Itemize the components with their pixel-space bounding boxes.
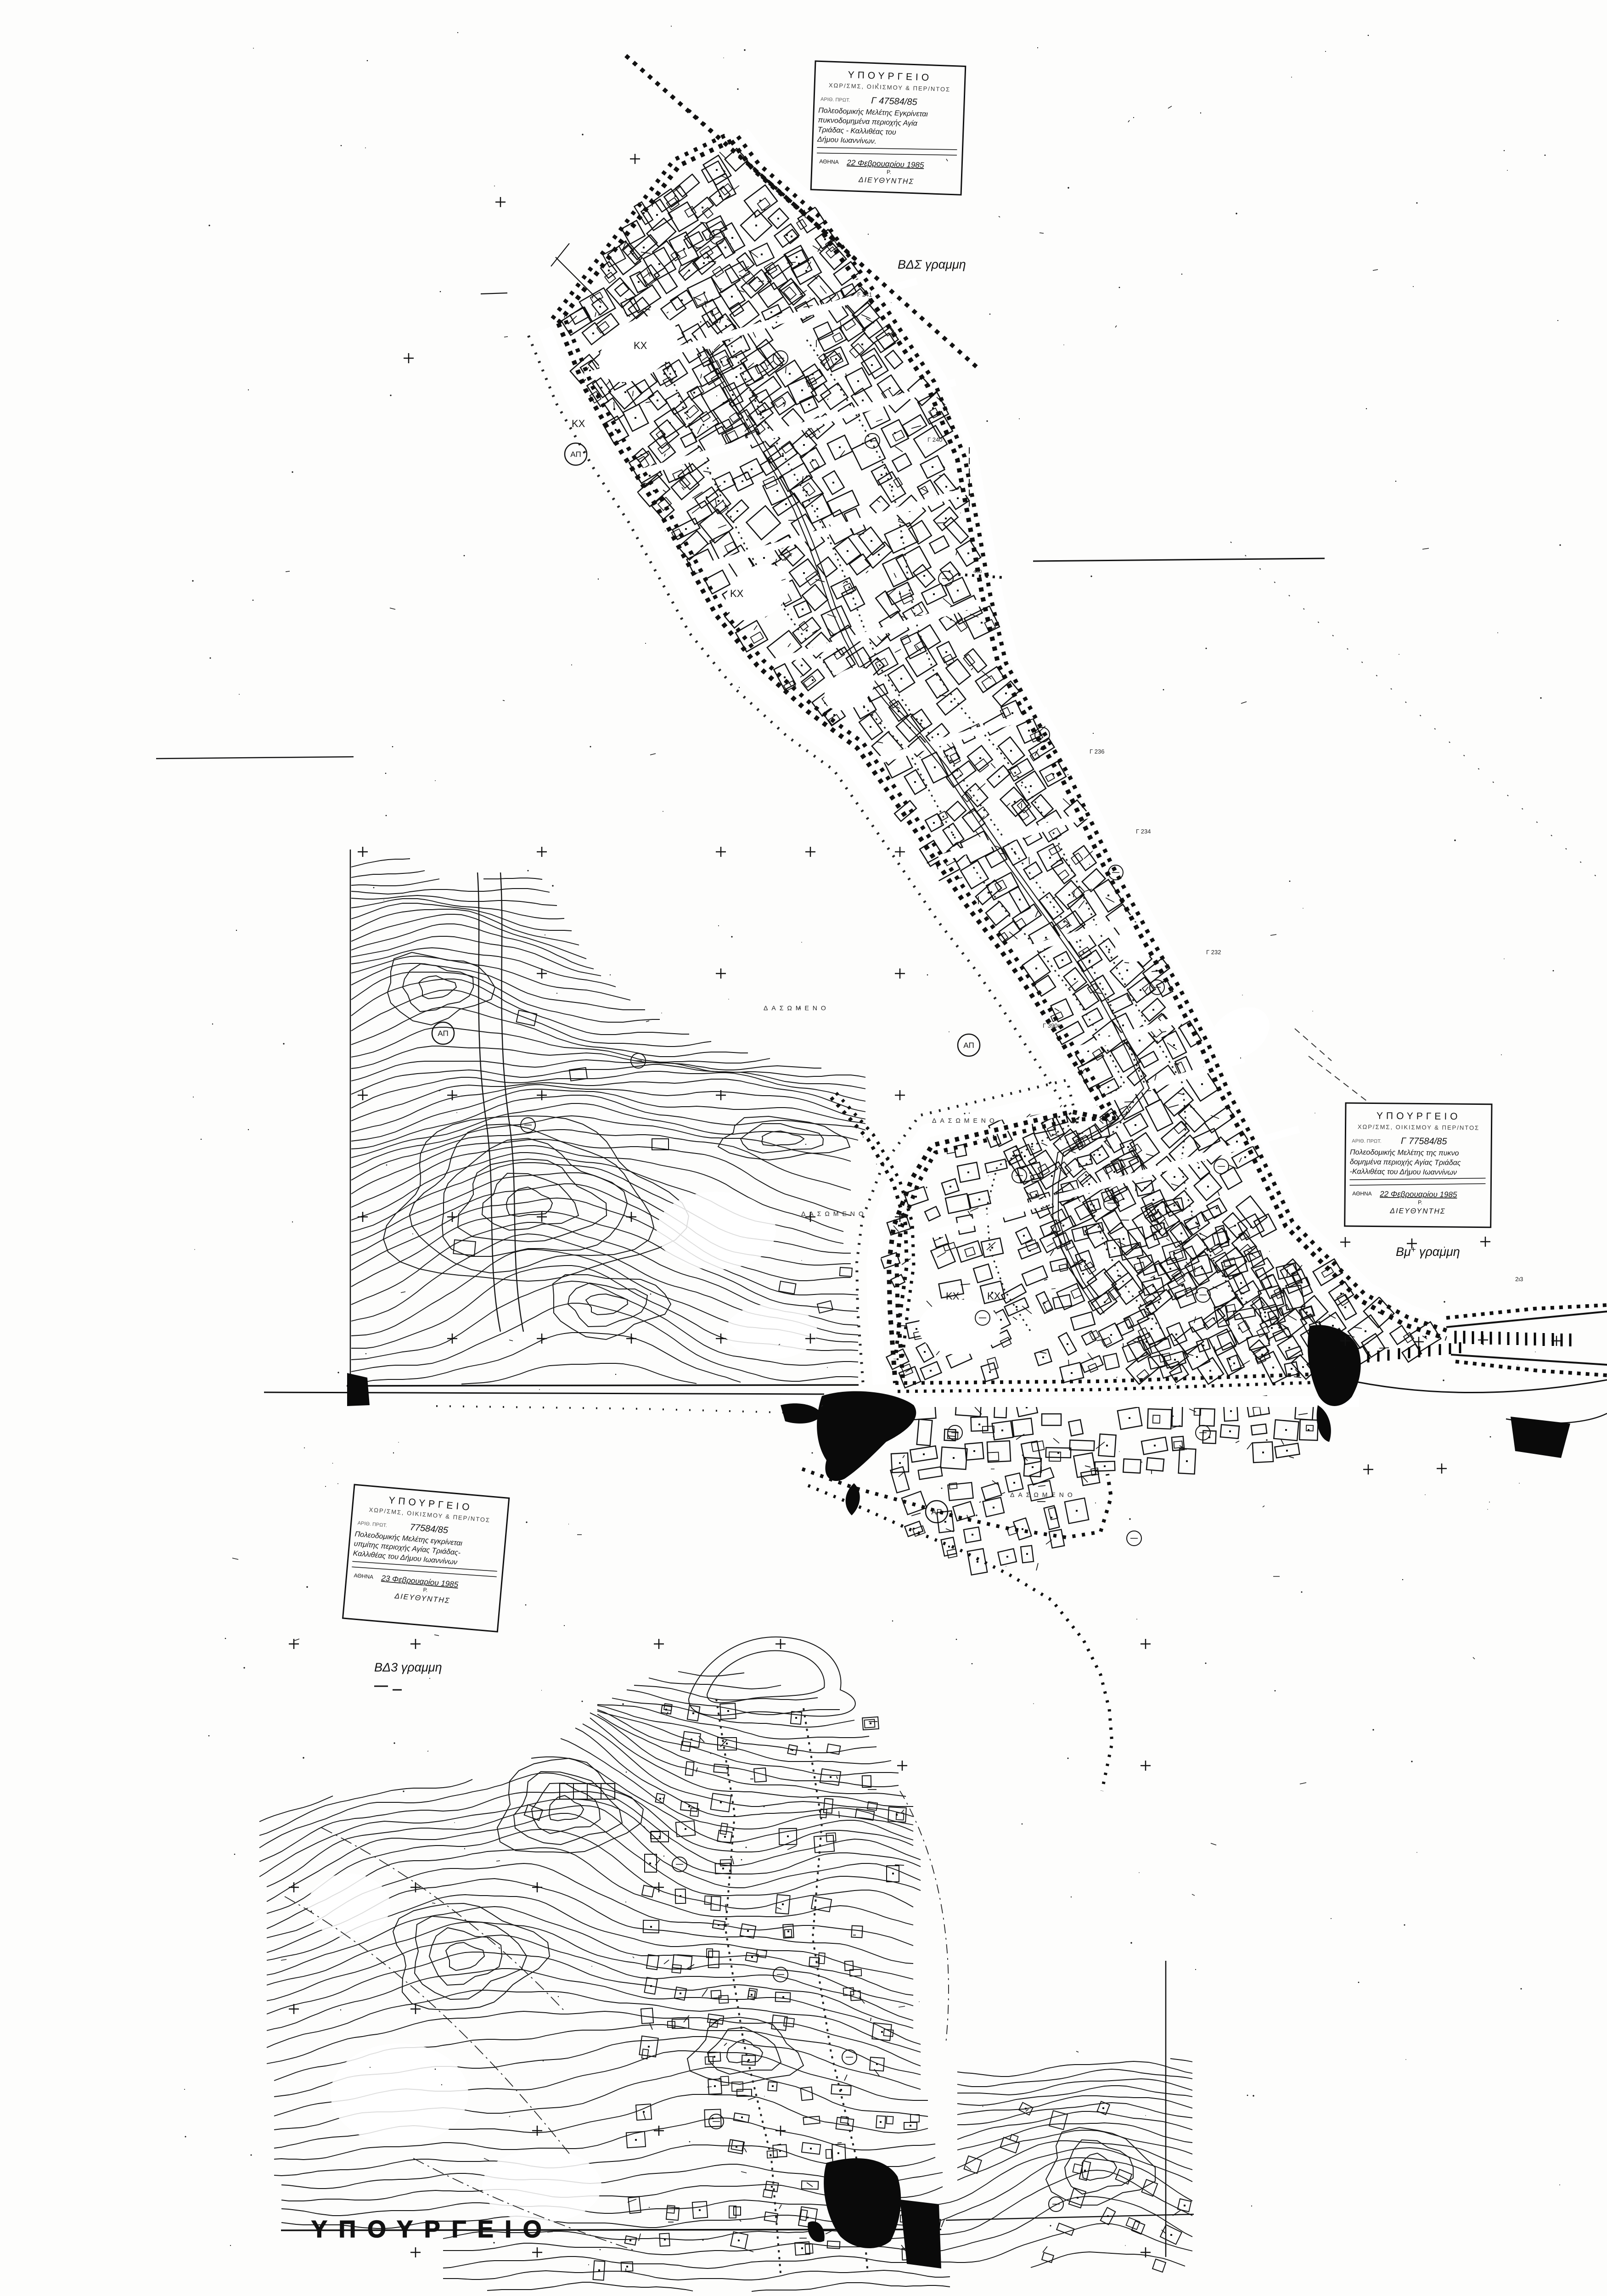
svg-text:ΔΑΣΩΜΕΝΟ: ΔΑΣΩΜΕΝΟ <box>1010 1491 1076 1498</box>
svg-text:ΔΑΣΩΜΕΝΟ: ΔΑΣΩΜΕΝΟ <box>801 1210 867 1217</box>
svg-text:ΔΑΣΩΜΕΝΟ: ΔΑΣΩΜΕΝΟ <box>764 1004 830 1012</box>
svg-text:ΧΩΡ/ΣΜΣ, ΟΙΚΙΣΜΟΥ & ΠΕΡ/ΝΤΟΣ: ΧΩΡ/ΣΜΣ, ΟΙΚΙΣΜΟΥ & ΠΕΡ/ΝΤΟΣ <box>1358 1123 1479 1131</box>
svg-text:Ρ.: Ρ. <box>1418 1199 1422 1205</box>
svg-text:ΔΑΣΩΜΕΝΟ: ΔΑΣΩΜΕΝΟ <box>932 1117 998 1124</box>
svg-text:Γ 77584/85: Γ 77584/85 <box>1401 1136 1447 1147</box>
svg-text:400: 400 <box>973 569 982 574</box>
svg-text:ΑΡΙΘ. ΠΡΩΤ.: ΑΡΙΘ. ΠΡΩΤ. <box>1352 1138 1382 1144</box>
svg-text:ΒΔΣ γραμμη: ΒΔΣ γραμμη <box>898 258 966 271</box>
svg-text:ΔΙΕΥΘΥΝΤΗΣ: ΔΙΕΥΘΥΝΤΗΣ <box>1389 1207 1445 1216</box>
svg-text:ΑΠ: ΑΠ <box>570 450 581 459</box>
svg-text:ΚΧ: ΚΧ <box>946 1290 960 1302</box>
svg-text:ΥΠΟΥΡΓΕΙΟ: ΥΠΟΥΡΓΕΙΟ <box>1377 1111 1461 1122</box>
svg-text:ΚΧ: ΚΧ <box>987 1290 1001 1302</box>
svg-text:ΚΧ: ΚΧ <box>572 418 585 429</box>
svg-text:ΚΧ: ΚΧ <box>634 340 647 351</box>
svg-text:Γ 390α: Γ 390α <box>1043 1022 1061 1029</box>
svg-text:ΑΠ: ΑΠ <box>963 1041 974 1050</box>
svg-text:Γ 240: Γ 240 <box>927 436 942 443</box>
svg-text:Γ 236: Γ 236 <box>1090 748 1104 755</box>
svg-text:Γ 232: Γ 232 <box>1206 949 1221 956</box>
svg-text:22 Φεβρουαρίου 1985: 22 Φεβρουαρίου 1985 <box>1379 1190 1457 1199</box>
svg-text:Γ 234: Γ 234 <box>1136 828 1151 835</box>
svg-text:ΒΔ3 γραμμη: ΒΔ3 γραμμη <box>374 1660 442 1674</box>
svg-text:Γ 47584/85: Γ 47584/85 <box>871 96 918 107</box>
svg-text:Βμ+ γραμμη: Βμ+ γραμμη <box>1396 1245 1460 1259</box>
svg-text:2ι3: 2ι3 <box>1515 1276 1523 1283</box>
svg-text:δομημένα περιοχής Αγίας Τριάδα: δομημένα περιοχής Αγίας Τριάδας <box>1350 1158 1461 1167</box>
svg-text:ΑΡΙΘ. ΠΡΩΤ.: ΑΡΙΘ. ΠΡΩΤ. <box>820 96 850 103</box>
svg-text:Ρ.: Ρ. <box>423 1587 428 1593</box>
svg-text:ΑΘΗΝΑ: ΑΘΗΝΑ <box>819 158 839 165</box>
svg-text:ΥΠΟΥΡΓΕΙΟ: ΥΠΟΥΡΓΕΙΟ <box>311 2216 553 2243</box>
svg-text:-Καλλιθέας του Δήμου Ιωαννίνων: -Καλλιθέας του Δήμου Ιωαννίνων <box>1350 1168 1457 1176</box>
svg-text:ΚΧ: ΚΧ <box>730 588 744 599</box>
svg-text:Πολεοδομικής Μελέτης της πυκνο: Πολεοδομικής Μελέτης της πυκνο <box>1350 1148 1459 1157</box>
svg-text:ΑΠ: ΑΠ <box>438 1029 449 1038</box>
svg-text:Ρ.: Ρ. <box>887 169 891 175</box>
svg-text:ΑΘΗΝΑ: ΑΘΗΝΑ <box>1352 1190 1372 1197</box>
svg-text:ΑΠ: ΑΠ <box>931 1508 942 1516</box>
